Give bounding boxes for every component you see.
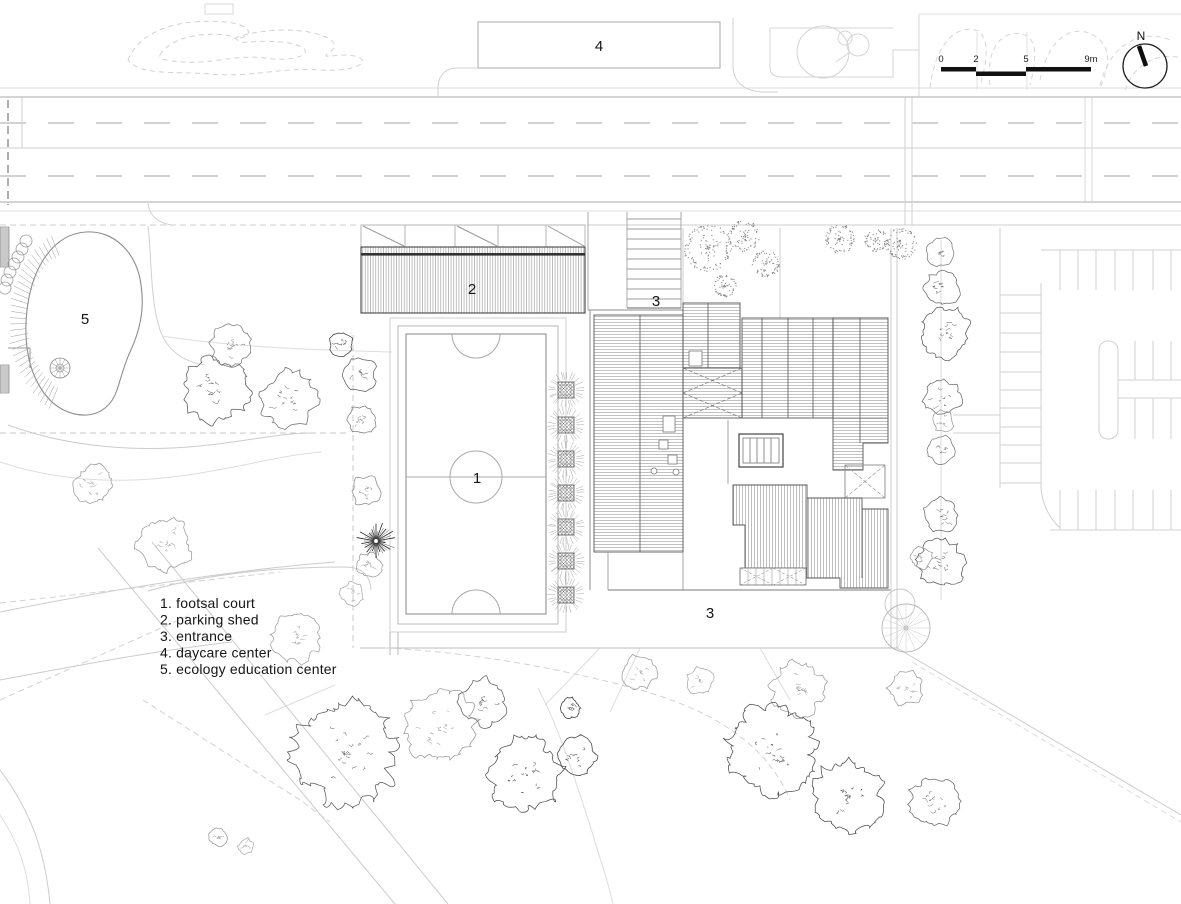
tree-planter [558, 485, 574, 501]
parking-lot [941, 228, 1181, 600]
road [0, 88, 1181, 225]
scale-tick-0: 0 [938, 54, 943, 65]
tree-canopy [287, 696, 400, 810]
tree-planter [558, 382, 574, 398]
tree-canopy [923, 270, 961, 304]
tree-canopy [259, 367, 320, 429]
stipple-trees-layer [684, 221, 917, 298]
tree-canopy [356, 552, 383, 577]
label-ecology-education-center: 5 [81, 311, 89, 328]
tree-planter [558, 587, 574, 603]
tree-canopy [339, 581, 363, 606]
main-building [588, 228, 897, 648]
tree-planter [558, 451, 574, 467]
tree-canopy [404, 689, 480, 761]
tree-canopy [352, 476, 381, 505]
site-plan-canvas: 4 0 2 5 9m N [0, 0, 1181, 904]
scale-tick-9m: 9m [1084, 54, 1097, 65]
legend-item-futsal: 1. footsal court [160, 595, 255, 611]
scale-bar: 0 2 5 9m [938, 32, 1097, 90]
label-daycare-center: 4 [595, 38, 603, 55]
tree-canopy [557, 735, 597, 776]
legend-item-ecology: 5. ecology education center [160, 661, 337, 677]
tree-canopy [270, 613, 320, 665]
tree-canopy [933, 410, 954, 432]
tree-canopy [134, 517, 191, 573]
entrance-stair: 3 [588, 212, 780, 318]
tree-planter [558, 553, 574, 569]
site-plan: 4 0 2 5 9m N [0, 0, 1181, 904]
tree-canopy [184, 355, 252, 426]
tree-canopy [921, 307, 970, 361]
label-entrance-bottom: 3 [706, 605, 714, 622]
contour-lines-left [128, 21, 363, 75]
legend: 1. footsal court 2. parking shed 3. entr… [160, 595, 337, 677]
tree-canopy [561, 697, 581, 718]
tree-canopy [457, 676, 507, 729]
tree-canopy [908, 778, 962, 826]
tree-canopy [922, 379, 963, 414]
tree-planter [558, 519, 574, 535]
tree-canopy [886, 671, 923, 706]
label-parking-shed: 2 [468, 281, 476, 298]
scale-tick-2: 2 [973, 54, 978, 65]
label-entrance-top: 3 [652, 293, 660, 310]
tree-canopy [342, 358, 376, 392]
scale-tick-5: 5 [1023, 54, 1028, 65]
ecology-education-center: 5 [0, 226, 392, 480]
label-futsal-court: 1 [473, 470, 481, 487]
legend-item-shed: 2. parking shed [160, 612, 259, 628]
legend-item-daycare: 4. daycare center [160, 645, 272, 661]
south-path: 3 [360, 605, 1181, 822]
spiral-stair [50, 358, 70, 378]
parking-shed: 2 [361, 225, 585, 313]
futsal-court: 1 [390, 318, 566, 655]
tree-canopy [812, 757, 884, 834]
north-label: N [1137, 29, 1146, 43]
legend-item-entry: 3. entrance [160, 628, 232, 644]
tree-planter [558, 417, 574, 433]
